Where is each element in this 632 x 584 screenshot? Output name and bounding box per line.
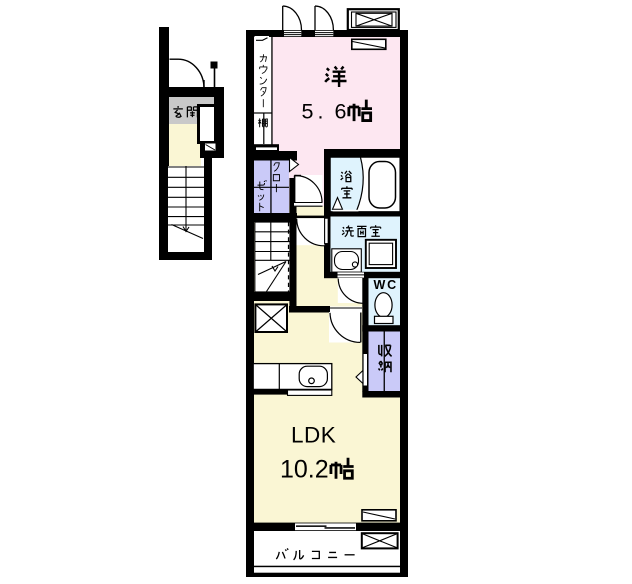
svg-text:LDK: LDK	[291, 423, 336, 448]
svg-text:WC: WC	[374, 278, 398, 292]
svg-text:6: 6	[335, 100, 347, 124]
svg-text:10.2: 10.2	[280, 456, 329, 484]
svg-text:5.: 5.	[302, 100, 328, 124]
